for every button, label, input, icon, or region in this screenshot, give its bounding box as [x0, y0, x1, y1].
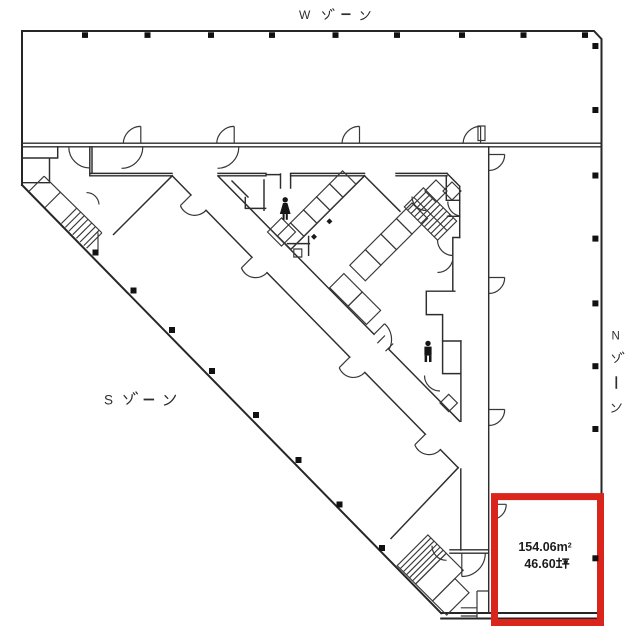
- svg-text:W: W: [299, 8, 311, 22]
- svg-text:154.06m2: 154.06m2: [518, 540, 571, 554]
- svg-text:46.60: 46.60: [524, 557, 555, 571]
- svg-text:S: S: [104, 393, 113, 408]
- svg-text:N: N: [612, 331, 620, 343]
